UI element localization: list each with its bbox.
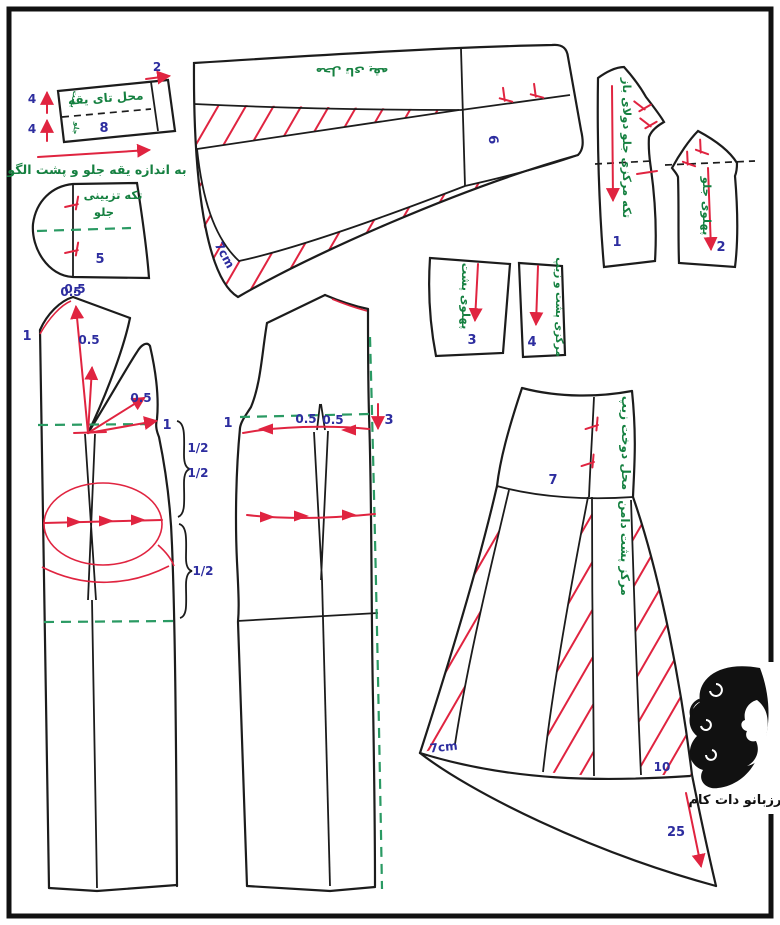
note-text: به اندازه یقه جلو و پشت الگو bbox=[6, 162, 186, 177]
piece6-divider bbox=[461, 49, 465, 186]
sewing-pattern-sheet: محل تای یقه پشت جلو 8 4 4 2 به اندازه یق… bbox=[0, 0, 780, 925]
back-red-neckline bbox=[332, 299, 367, 311]
piece-5-decorative-front: تکه تزیینی جلو 5 0.5 bbox=[33, 183, 149, 299]
back-waist-arrowhead-1 bbox=[258, 424, 273, 435]
front-panel-offset-label: 0.5 bbox=[130, 391, 151, 405]
skirt-hem-width-label: 7cm bbox=[429, 739, 458, 756]
back-hem bbox=[247, 886, 375, 891]
piece6-notch-1 bbox=[499, 88, 515, 103]
skirt-right-number: 10 bbox=[654, 760, 671, 774]
measure-note: به اندازه یقه جلو و پشت الگو bbox=[6, 150, 186, 177]
piece2-label: پهلوی جلو bbox=[699, 176, 714, 236]
page-border bbox=[9, 9, 771, 916]
piece3-label: پهلوی پشت bbox=[458, 263, 473, 330]
band-inner-line bbox=[151, 82, 158, 131]
piece3-number: 3 bbox=[467, 333, 476, 348]
piece3-grain-arrow bbox=[475, 264, 478, 320]
skirt-hatch-right bbox=[631, 497, 692, 775]
front-brace-lower bbox=[179, 524, 192, 618]
piece5-notch-1 bbox=[65, 195, 79, 210]
back-left-edge bbox=[236, 323, 267, 886]
piece-collar-fold-band: محل تای یقه پشت جلو 8 4 4 2 bbox=[28, 60, 175, 142]
skirt-left-edge bbox=[420, 388, 522, 753]
skirt-zip-notch-2 bbox=[581, 454, 594, 468]
piece6-notch-2 bbox=[530, 84, 546, 99]
band-arrow-right bbox=[146, 76, 169, 79]
front-mid-arrowhead-2 bbox=[99, 516, 114, 527]
piece-1-center-front: تکه مرکزی جلو دولای باز 1 bbox=[595, 67, 664, 267]
band-dim-2: 2 bbox=[153, 60, 161, 74]
piece1-grain-arrow bbox=[612, 86, 613, 200]
collar-fold-label-rotated: محل تای یقه bbox=[316, 65, 388, 79]
front-half-a: 1/2 bbox=[187, 441, 208, 455]
front-dart-line-down bbox=[92, 600, 97, 888]
note-arrow bbox=[38, 150, 149, 157]
band-number: 8 bbox=[99, 121, 108, 136]
skirt-back: محل دوخت زیپ مرکز پشت دامن 7 7cm 10 25 bbox=[420, 388, 716, 886]
front-red-ray-1 bbox=[76, 307, 88, 433]
front-dart bbox=[85, 434, 96, 600]
back-left-label: 1 bbox=[223, 416, 232, 431]
front-bodice: 0.5 1 0.5 0.5 1 1/2 1/2 1/2 bbox=[22, 282, 213, 891]
piece2-dashed-line bbox=[665, 161, 755, 165]
piece1-notch-2 bbox=[640, 112, 657, 129]
skirt-seam-line bbox=[497, 486, 633, 498]
skirt-zip-label: محل دوخت زیپ bbox=[618, 396, 633, 490]
band-dim-4-bottom: 4 bbox=[28, 122, 36, 136]
front-shoulder bbox=[73, 297, 130, 318]
skirt-waist bbox=[522, 388, 632, 396]
front-mid-arrowhead-3 bbox=[131, 515, 146, 526]
back-neckline bbox=[325, 295, 368, 309]
back-lower-arrowhead-1 bbox=[260, 512, 275, 523]
piece4-label: مرکزی پشت و زیپ bbox=[553, 257, 565, 357]
skirt-zip-line bbox=[589, 397, 594, 497]
front-v-offset-label: 0.5 bbox=[78, 333, 99, 347]
front-mid-arrowhead-1 bbox=[67, 517, 82, 528]
back-dart bbox=[314, 404, 328, 580]
front-red-neckline bbox=[40, 301, 71, 334]
front-hem bbox=[49, 885, 177, 891]
site-logo: رزبانو دات کام bbox=[689, 662, 780, 814]
back-lower-arrowhead-2 bbox=[294, 511, 309, 522]
band-dim-4-top: 4 bbox=[28, 92, 36, 106]
skirt-number: 7 bbox=[548, 473, 557, 488]
front-red-bust-bar bbox=[74, 432, 106, 433]
piece2-notch-2 bbox=[696, 139, 712, 155]
front-center-edge bbox=[40, 330, 49, 888]
front-hip-dashed bbox=[44, 621, 175, 622]
piece2-notch-1 bbox=[683, 151, 699, 167]
band-front-label: جلو bbox=[71, 121, 81, 135]
piece1-notch-1 bbox=[634, 95, 651, 112]
piece-4-center-back: مرکزی پشت و زیپ 4 bbox=[519, 257, 565, 357]
back-right-label: 3 bbox=[384, 413, 393, 428]
piece5-number: 5 bbox=[95, 252, 104, 267]
back-shoulder bbox=[267, 295, 325, 323]
back-hip-line bbox=[237, 613, 378, 621]
piece5-grain-dashed bbox=[37, 228, 131, 231]
piece2-number: 2 bbox=[716, 240, 725, 255]
back-offset-b: 0.5 bbox=[322, 413, 343, 427]
front-neck-offset-label: 0.5 bbox=[64, 282, 85, 296]
piece5-label-1: تکه تزیینی bbox=[84, 188, 143, 202]
piece5-label-2: جلو bbox=[93, 205, 114, 220]
collar-assembly: محل تای یقه 6 7cm bbox=[194, 45, 583, 297]
pattern-drawing: محل تای یقه پشت جلو 8 4 4 2 به اندازه یق… bbox=[0, 0, 780, 925]
back-offset-a: 0.5 bbox=[295, 412, 316, 426]
piece1-label: تکه مرکزی جلو دولای باز bbox=[619, 77, 634, 218]
front-left-label: 1 bbox=[22, 329, 31, 344]
front-half-c: 1/2 bbox=[192, 564, 213, 578]
skirt-hatch-center bbox=[543, 497, 594, 776]
front-half-b: 1/2 bbox=[187, 466, 208, 480]
piece5-notch-2 bbox=[65, 241, 79, 256]
piece4-grain-arrow bbox=[536, 266, 538, 324]
logo-text: رزبانو دات کام bbox=[689, 793, 780, 808]
band-fold-dashed-line bbox=[62, 109, 151, 117]
front-side-label: 1 bbox=[162, 418, 171, 433]
piece1-red-bar bbox=[637, 171, 657, 174]
piece-3-back-side: پهلوی پشت 3 bbox=[429, 258, 510, 356]
piece4-number: 4 bbox=[527, 335, 536, 350]
back-bodice: 1 0.5 0.5 3 bbox=[223, 295, 393, 891]
skirt-flare-number: 25 bbox=[667, 825, 685, 840]
piece6-number: 6 bbox=[485, 135, 501, 145]
skirt-center-label: مرکز پشت دامن bbox=[618, 500, 632, 596]
back-dart-line-down bbox=[322, 580, 330, 886]
back-lower-arrowhead-3 bbox=[342, 510, 357, 521]
piece1-number: 1 bbox=[612, 235, 621, 250]
front-red-lower-curve bbox=[42, 566, 169, 582]
piece-2-front-side: پهلوی جلو 2 bbox=[665, 131, 755, 267]
